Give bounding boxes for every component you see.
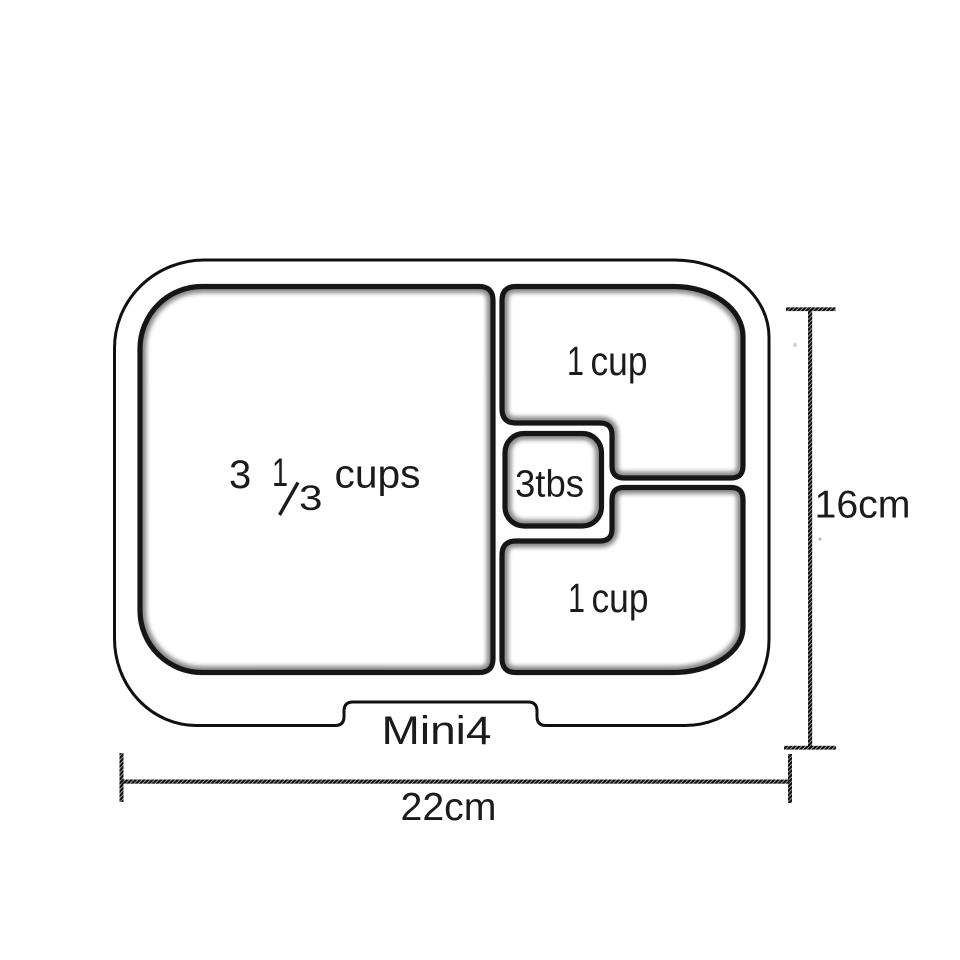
svg-text:22cm: 22cm [401,786,497,829]
svg-text:cup: cup [591,338,648,384]
svg-text:1: 1 [567,338,584,384]
svg-text:1: 1 [568,575,585,621]
svg-text:cups: cups [335,453,421,497]
svg-text:16cm: 16cm [815,484,911,527]
svg-text:3tbs: 3tbs [515,464,584,506]
svg-text:1: 1 [272,451,288,495]
svg-text:Mini4: Mini4 [382,709,492,753]
svg-text:3: 3 [299,478,323,518]
svg-text:cup: cup [592,575,649,621]
svg-text:3: 3 [229,453,251,497]
